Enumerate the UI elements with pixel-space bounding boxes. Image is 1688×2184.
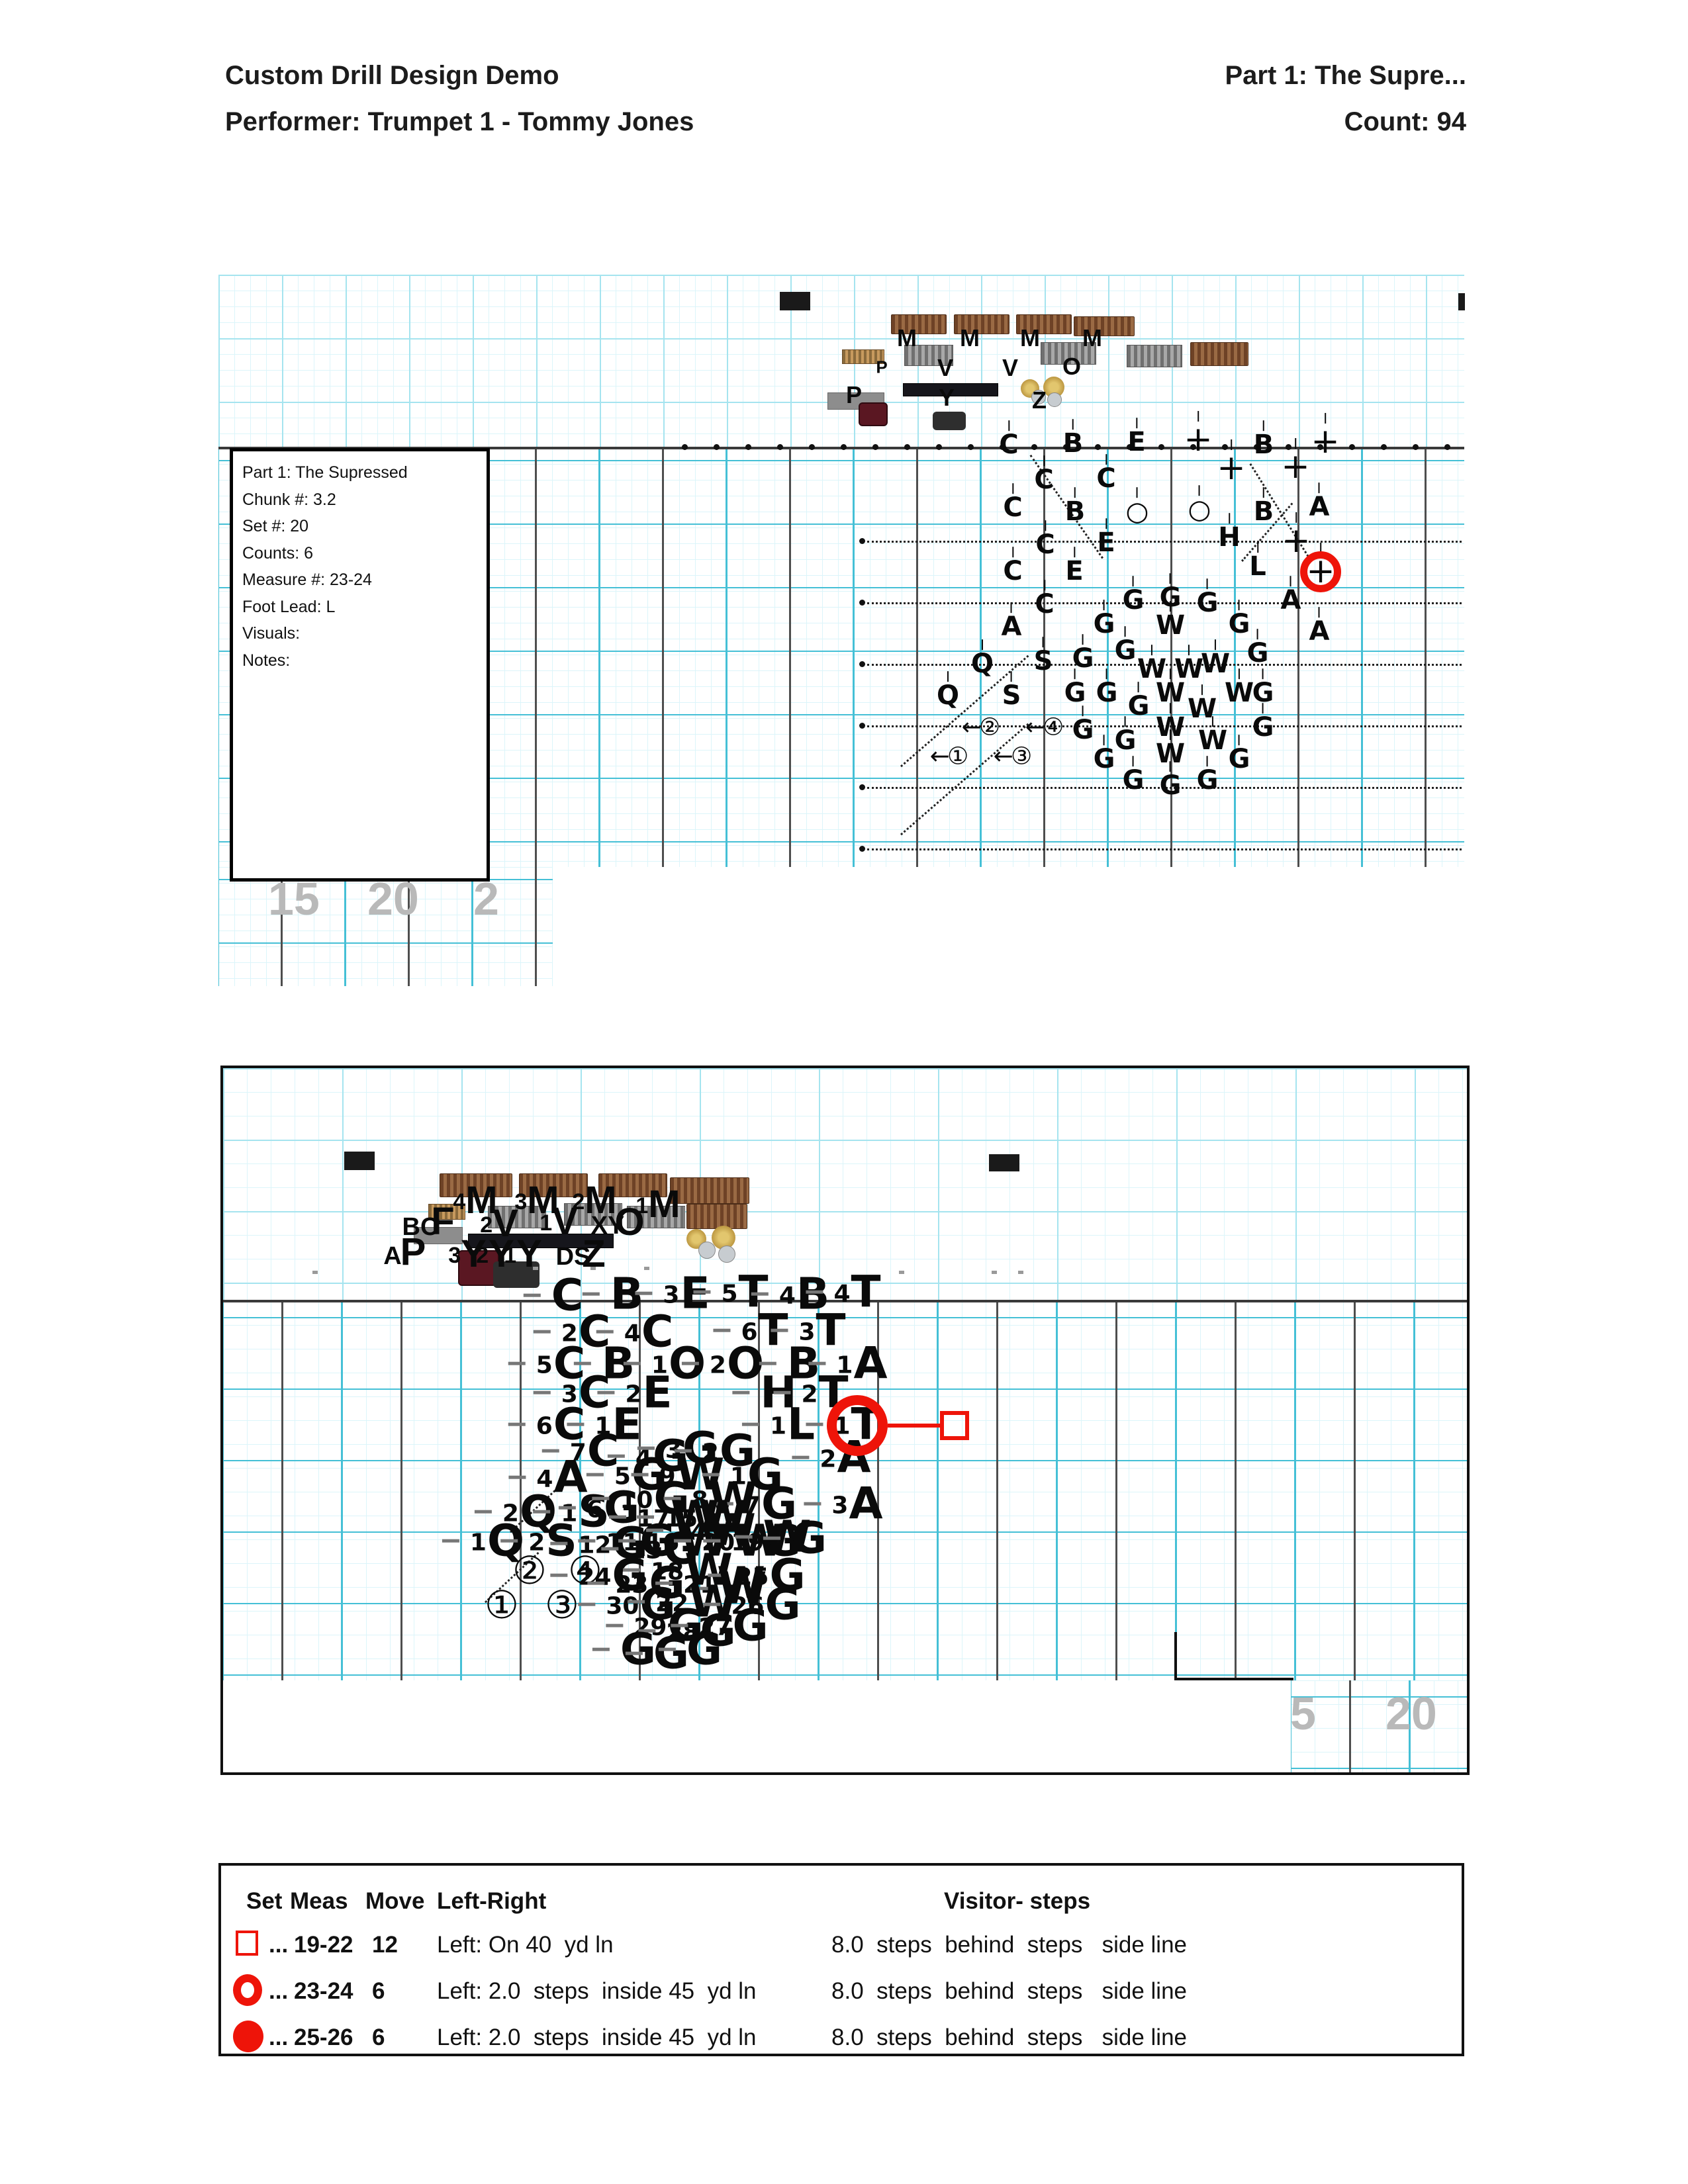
performer-marker: ←② (962, 715, 998, 739)
performer-marker: G (653, 1632, 689, 1676)
performer-marker: G (1197, 590, 1219, 616)
pit-label: A (383, 1244, 401, 1269)
performer-marker: G (1160, 772, 1182, 799)
pit-label-number: 2 (476, 1243, 489, 1268)
col-move: Move (365, 1888, 424, 1915)
col-visitor: Visitor- steps (944, 1888, 1090, 1915)
meas-cell: 19-22 (294, 1932, 353, 1958)
selected-performer-ring (1300, 551, 1341, 592)
performer-marker: G (1197, 767, 1219, 794)
drum-icon (1047, 392, 1062, 407)
performer-marker: W (1225, 680, 1254, 706)
performer-marker: ←① (930, 745, 966, 768)
pit-label-number: 4 (453, 1189, 465, 1214)
performer-marker: B (1063, 430, 1084, 457)
performer-marker: E (1065, 558, 1083, 584)
performer-marker: C (1003, 558, 1022, 584)
performer-marker: W (1198, 727, 1227, 754)
open-circle-icon (233, 1974, 262, 2006)
performer-marker: G (1123, 767, 1145, 794)
part-title: Part 1: The Supre... (993, 61, 1466, 91)
performer-marker: C (1003, 494, 1022, 521)
pit-label: M (897, 324, 917, 352)
marimba-icon (686, 1204, 747, 1229)
performer-marker: B (1065, 498, 1086, 525)
performer-marker: L (1249, 553, 1266, 580)
performer-marker: G (1123, 587, 1145, 614)
performer-marker: G (686, 1628, 722, 1672)
sideline-dot (714, 444, 720, 450)
movement-line (888, 1424, 940, 1428)
performer-marker: G (1064, 680, 1086, 706)
hash-dot (859, 784, 865, 790)
marimba-icon (670, 1177, 749, 1204)
performer-marker: H (1218, 524, 1240, 551)
bassdrum-icon (859, 402, 888, 426)
sideline-dot (1031, 444, 1037, 450)
performer-marker: W (1156, 612, 1185, 639)
field-dash (590, 1267, 596, 1270)
pit-label-number: 1 (504, 1243, 516, 1268)
performer-marker: ○ (1188, 496, 1211, 523)
sideline-dot (745, 444, 751, 450)
performer-marker: E (1127, 429, 1145, 455)
performer-number: 1 (770, 1413, 786, 1440)
sideline-dot (1381, 444, 1387, 450)
hash-dot (859, 661, 865, 667)
field-dash (533, 1267, 538, 1270)
performer-marker: G (1252, 714, 1274, 741)
yard-number: 5 (1290, 1687, 1316, 1740)
performer-marker: S (1002, 682, 1021, 709)
performer-number: 6 (536, 1413, 553, 1440)
pit-label: O (614, 1203, 644, 1242)
next-position-square (940, 1411, 969, 1440)
performer-marker: A (1309, 494, 1330, 520)
performer-label: Performer: Trumpet 1 - Tommy Jones (225, 107, 694, 137)
performer-number: 3 (831, 1492, 848, 1520)
performer-marker: G (1115, 637, 1137, 664)
info-line: Visuals: (242, 620, 477, 647)
performer-marker: + (1184, 422, 1213, 457)
performer-number: 3 (663, 1282, 679, 1309)
performer-marker: B (1254, 498, 1274, 525)
performer-marker: C (1035, 531, 1055, 558)
performer-number: 2 (710, 1352, 726, 1379)
hash-dot (859, 600, 865, 606)
hash-dotted-line (867, 541, 1462, 543)
filled-circle-icon (233, 2021, 263, 2052)
col-lr: Left-Right (437, 1888, 546, 1915)
sideline-dot (1095, 444, 1101, 450)
pit-label: M (960, 324, 980, 352)
performer-marker: G (1128, 693, 1150, 719)
drum-icon (698, 1242, 716, 1259)
visitor-cell: 8.0 steps behind steps side line (831, 1978, 1187, 2005)
sideline-dot (1349, 444, 1355, 450)
pit-label: O (1062, 353, 1081, 381)
selected-performer-ring (827, 1395, 888, 1456)
performer-marker: G (1094, 746, 1115, 772)
pit-label: P (846, 381, 862, 409)
performer-marker: G (1072, 717, 1094, 743)
visitor-cell: 8.0 steps behind steps side line (831, 1932, 1187, 1958)
performer-marker: C (1035, 591, 1054, 617)
performer-marker: C (1096, 465, 1115, 492)
performer-marker: B (1254, 432, 1274, 458)
performer-marker: S (1034, 648, 1053, 674)
meas-cell: 23-24 (294, 1978, 353, 2005)
performer-marker: G (1229, 746, 1250, 772)
field-dash (644, 1267, 649, 1270)
info-line: Counts: 6 (242, 540, 477, 567)
table-row: ... 19-22 12 Left: On 40 yd ln 8.0 steps… (221, 1927, 1462, 1969)
pit-label: Z (1032, 387, 1047, 414)
sideline-dot (1444, 444, 1450, 450)
performer-number: 2 (820, 1446, 836, 1473)
page-title: Custom Drill Design Demo (225, 61, 559, 91)
performer-marker: G (1247, 640, 1269, 666)
table-row: ... 25-26 6 Left: 2.0 steps inside 45 yd… (221, 2019, 1462, 2062)
pit-label: V (937, 354, 953, 382)
sideline-dot (968, 444, 974, 450)
col-set: Set (246, 1888, 282, 1915)
performer-marker: + (1217, 451, 1246, 485)
performer-marker: A (1281, 587, 1301, 614)
performer-marker: 2O (710, 1342, 764, 1386)
performer-number: 19 (731, 1529, 764, 1557)
sideline-dot (682, 444, 688, 450)
field-edge-line (1174, 1678, 1293, 1680)
pit-label: M (1082, 324, 1102, 352)
pit-label: 1V (539, 1203, 578, 1241)
field-dash (312, 1271, 318, 1274)
sideline-dot (777, 444, 783, 450)
performer-marker: G (1115, 727, 1137, 754)
performer-marker: A (1002, 614, 1022, 640)
table-row: ... 23-24 6 Left: 2.0 steps inside 45 yd… (221, 1973, 1462, 2015)
hash-dot (859, 846, 865, 852)
field-grid-back (218, 275, 1464, 448)
performer-marker: W (1156, 680, 1185, 706)
marimba-icon (1190, 342, 1248, 366)
set-dots: ... (269, 1978, 288, 2005)
lr-cell: Left: On 40 yd ln (437, 1932, 614, 1958)
performer-marker: G (1096, 680, 1118, 706)
gong-icon (933, 412, 966, 430)
performer-marker: ○ (1126, 498, 1149, 525)
open-square-icon (236, 1931, 258, 1956)
performer-number: 4 (833, 1281, 850, 1308)
movement-table: Set Meas Move Left-Right Visitor- steps … (218, 1863, 1464, 2056)
performer-marker: C (999, 432, 1018, 458)
field-grid-extension (1291, 1680, 1467, 1772)
move-cell: 6 (372, 2025, 385, 2051)
hash-dotted-line (867, 848, 1462, 850)
col-meas: Meas (290, 1888, 348, 1915)
set-dots: ... (269, 2025, 288, 2051)
info-line: Chunk #: 3.2 (242, 486, 477, 514)
set-dots: ... (269, 1932, 288, 1958)
pit-label: M (1020, 324, 1040, 352)
drum-icon (718, 1246, 735, 1263)
performer-marker: G (1094, 611, 1115, 637)
performer-marker: G (1072, 645, 1094, 672)
info-line: Measure #: 23-24 (242, 567, 477, 594)
pit-label: Y (939, 384, 955, 412)
hash-dot (859, 538, 865, 544)
performer-marker: G (1229, 611, 1250, 637)
podium-icon (989, 1154, 1019, 1171)
performer-marker: + (1281, 449, 1310, 484)
field-dash (1018, 1271, 1023, 1274)
podium-icon (344, 1152, 375, 1170)
count-label: Count: 94 (993, 107, 1466, 137)
performer-marker: ① (485, 1586, 519, 1624)
sideline-dot (936, 444, 942, 450)
performer-marker: ③ (545, 1586, 579, 1624)
performer-marker: Q (971, 651, 994, 677)
performer-marker: Q (937, 682, 959, 709)
podium-icon (1458, 293, 1465, 310)
pit-label-number: 3 (448, 1243, 461, 1268)
info-line: Set #: 20 (242, 513, 477, 540)
performer-marker: A (1309, 618, 1330, 645)
lr-cell: Left: 2.0 steps inside 45 yd ln (437, 2025, 757, 2051)
field-dash (899, 1271, 904, 1274)
visitor-cell: 8.0 steps behind steps side line (831, 2025, 1187, 2051)
performer-marker: W (1201, 651, 1230, 677)
pit-label: P (400, 1233, 426, 1271)
sideline-dot (1413, 444, 1419, 450)
performer-marker: ←④ (1025, 715, 1061, 739)
sideline-dot (1158, 444, 1164, 450)
sideline-dot (809, 444, 815, 450)
set-info-box: Part 1: The Supressed Chunk #: 3.2 Set #… (230, 448, 490, 882)
performer-number: 1 (470, 1529, 487, 1557)
move-cell: 12 (372, 1932, 398, 1958)
podium-icon (780, 292, 810, 310)
performer-marker: ←③ (994, 745, 1029, 768)
performer-number: 5 (536, 1352, 553, 1379)
move-cell: 6 (372, 1978, 385, 2005)
performer-marker: E (1097, 529, 1115, 556)
performer-marker: C (1034, 467, 1053, 493)
info-line: Foot Lead: L (242, 594, 477, 621)
sideline-dot (872, 444, 878, 450)
drill-chart-page: { "header": { "title": "Custom Drill Des… (0, 0, 1688, 2184)
lr-cell: Left: 2.0 steps inside 45 yd ln (437, 1978, 757, 2005)
info-line: Notes: (242, 647, 477, 674)
performer-marker: G (620, 1628, 656, 1672)
sideline-dot (904, 444, 910, 450)
info-line: Part 1: The Supressed (242, 459, 477, 486)
yard-number: 20 (1385, 1687, 1437, 1740)
field-edge-line (1174, 1632, 1177, 1680)
hash-dot (859, 723, 865, 729)
sideline-dot (841, 444, 847, 450)
performer-marker: + (1311, 424, 1340, 459)
pit-label: V (1002, 354, 1018, 382)
performer-number: 5 (721, 1281, 737, 1308)
vibe-icon (1127, 345, 1182, 367)
performer-number: 6 (586, 1496, 603, 1524)
drill-chart-zoomed: 4M3M2M1MBCF2V1VXYOAP3Y2Y1YDSZCB3E5T4B4T2… (220, 1066, 1470, 1775)
meas-cell: 25-26 (294, 2025, 353, 2051)
field-dash (992, 1271, 997, 1274)
pit-label: P (876, 357, 887, 378)
performer-marker: 3A (831, 1482, 882, 1526)
performer-marker: G (1252, 680, 1274, 706)
